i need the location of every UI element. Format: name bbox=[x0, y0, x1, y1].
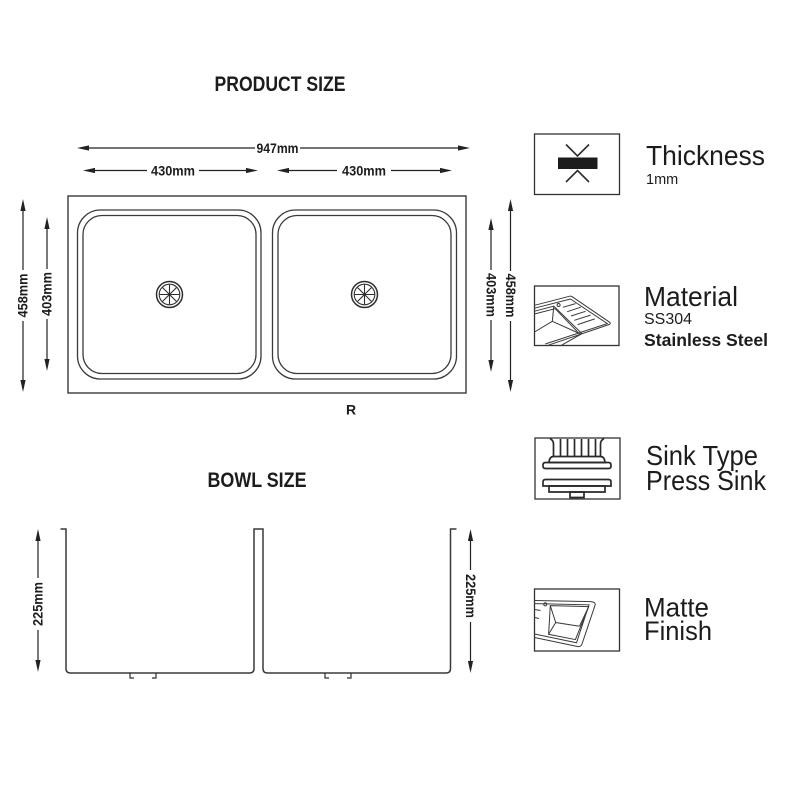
svg-text:403mm: 403mm bbox=[483, 273, 498, 317]
svg-text:Thickness: Thickness bbox=[646, 140, 765, 171]
svg-text:Press Sink: Press Sink bbox=[646, 465, 767, 496]
svg-text:430mm: 430mm bbox=[151, 163, 195, 178]
svg-text:225mm: 225mm bbox=[463, 574, 478, 618]
svg-text:458mm: 458mm bbox=[503, 274, 518, 318]
svg-text:Finish: Finish bbox=[644, 616, 712, 646]
svg-text:947mm: 947mm bbox=[257, 141, 299, 156]
svg-text:Stainless Steel: Stainless Steel bbox=[644, 330, 768, 350]
svg-text:Material: Material bbox=[644, 281, 738, 312]
svg-text:225mm: 225mm bbox=[31, 582, 46, 626]
svg-text:R: R bbox=[346, 402, 356, 418]
svg-text:1mm: 1mm bbox=[646, 172, 678, 188]
svg-text:458mm: 458mm bbox=[16, 274, 31, 318]
svg-text:430mm: 430mm bbox=[342, 163, 386, 178]
svg-text:BOWL SIZE: BOWL SIZE bbox=[208, 469, 307, 492]
svg-text:403mm: 403mm bbox=[40, 272, 55, 316]
svg-text:SS304: SS304 bbox=[644, 311, 692, 328]
svg-text:PRODUCT SIZE: PRODUCT SIZE bbox=[215, 73, 346, 96]
